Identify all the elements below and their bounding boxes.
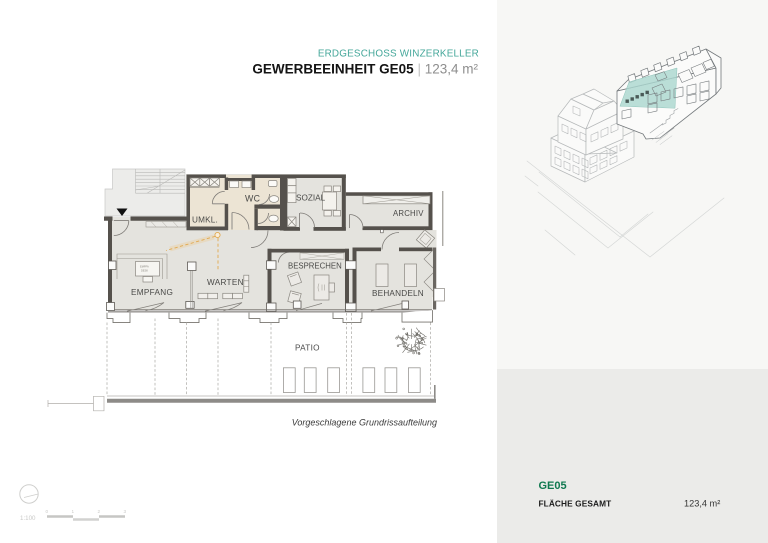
svg-text:PATIO: PATIO bbox=[295, 344, 320, 353]
svg-text:ERDGESCHOSS WINZERKELLER: ERDGESCHOSS WINZERKELLER bbox=[318, 49, 479, 60]
svg-text:3: 3 bbox=[124, 509, 127, 514]
svg-text:FLÄCHE GESAMT: FLÄCHE GESAMT bbox=[539, 499, 612, 509]
svg-text:EMPFA: EMPFA bbox=[140, 265, 149, 269]
svg-text:ARCHIV: ARCHIV bbox=[393, 209, 424, 218]
svg-text:1:100: 1:100 bbox=[20, 515, 36, 522]
svg-text:BEHANDELN: BEHANDELN bbox=[372, 289, 424, 298]
svg-text:GEWERBEEINHEIT GE05 | 123,4 m²: GEWERBEEINHEIT GE05 | 123,4 m² bbox=[252, 62, 478, 77]
svg-text:UMKL.: UMKL. bbox=[192, 216, 218, 225]
svg-text:2: 2 bbox=[98, 509, 101, 514]
svg-text:BESPRECHEN: BESPRECHEN bbox=[288, 261, 342, 270]
svg-text:GE05: GE05 bbox=[539, 480, 567, 492]
svg-text:EMPFANG: EMPFANG bbox=[131, 288, 173, 297]
svg-text:0: 0 bbox=[46, 509, 49, 514]
svg-text:1: 1 bbox=[72, 509, 75, 514]
svg-text:WARTEN: WARTEN bbox=[207, 278, 244, 287]
svg-text:WC: WC bbox=[245, 194, 261, 204]
svg-text:123,4 m²: 123,4 m² bbox=[684, 499, 720, 509]
svg-text:Vorgeschlagene Grundrissauftei: Vorgeschlagene Grundrissaufteilung bbox=[292, 418, 437, 428]
svg-text:DESK: DESK bbox=[141, 269, 148, 273]
svg-text:SOZIAL: SOZIAL bbox=[296, 194, 326, 203]
